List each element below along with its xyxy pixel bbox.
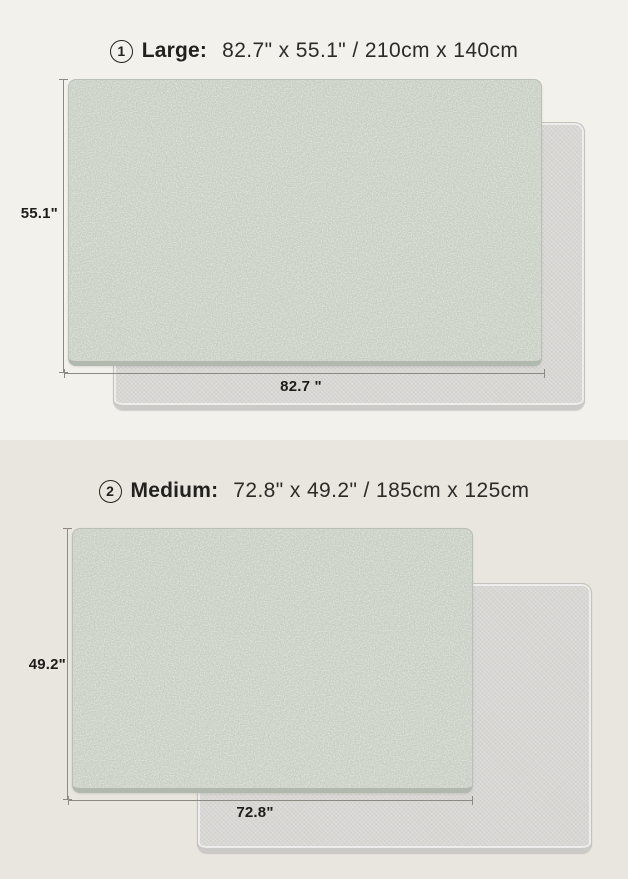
section-large: 1 Large: 82.7" x 55.1" / 210cm x 140cm 5…: [0, 0, 628, 440]
height-dimension-label: 55.1": [0, 206, 58, 222]
large-mat-scene: 55.1" 82.7 ": [0, 0, 628, 440]
dimension-tick: [59, 79, 68, 80]
dimension-tick: [472, 796, 473, 805]
width-dimension-label: 72.8": [213, 805, 297, 821]
height-dimension-line: [63, 79, 64, 373]
dimension-tick: [544, 369, 545, 378]
mat-speckle-texture: [73, 529, 472, 788]
green-play-mat: [72, 528, 473, 793]
medium-mat-scene: 49.2" 72.8": [0, 440, 628, 879]
mat-speckle-texture: [69, 80, 541, 361]
height-dimension-line: [67, 528, 68, 800]
green-play-mat: [68, 79, 542, 366]
dimension-tick: [68, 796, 69, 805]
product-size-infographic: 1 Large: 82.7" x 55.1" / 210cm x 140cm 5…: [0, 0, 628, 879]
width-dimension-line: [64, 373, 545, 374]
width-dimension-line: [68, 800, 473, 801]
dimension-tick: [64, 369, 65, 378]
width-dimension-label: 82.7 ": [261, 379, 341, 395]
height-dimension-label: 49.2": [6, 657, 66, 673]
section-medium: 2 Medium: 72.8" x 49.2" / 185cm x 125cm …: [0, 440, 628, 879]
dimension-tick: [63, 528, 72, 529]
